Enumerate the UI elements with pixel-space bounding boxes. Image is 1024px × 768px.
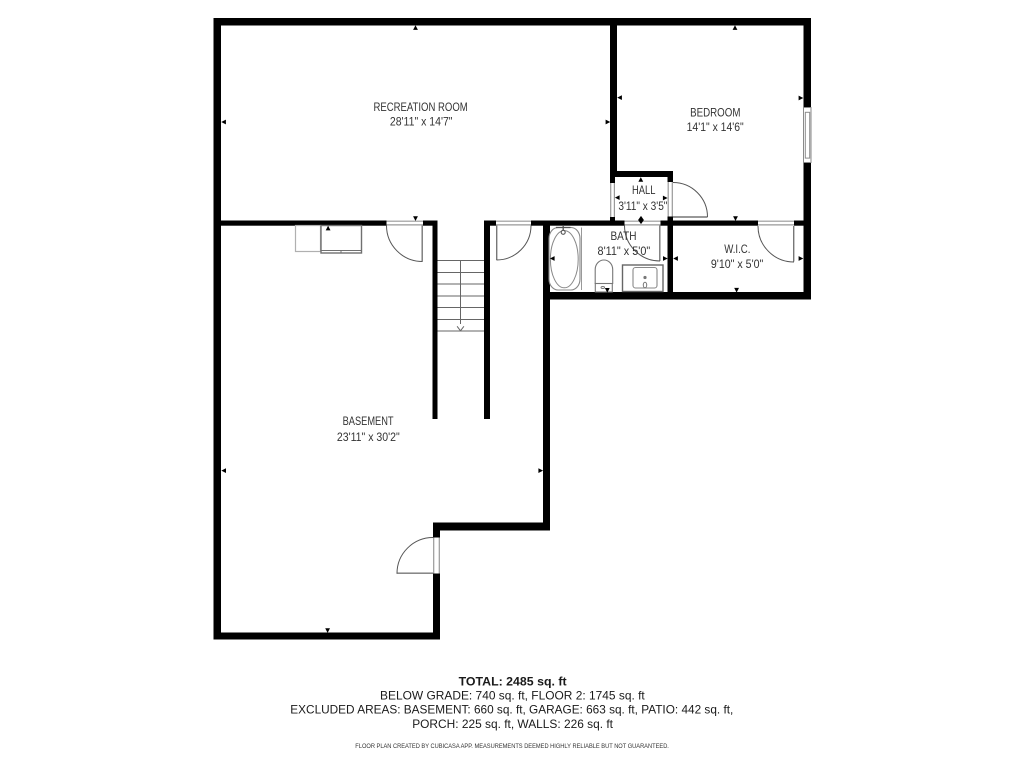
svg-text:28'11" x 14'7": 28'11" x 14'7" (390, 115, 453, 129)
svg-text:14'1" x 14'6": 14'1" x 14'6" (687, 120, 744, 134)
svg-text:BEDROOM: BEDROOM (690, 106, 740, 120)
svg-text:FLOOR PLAN CREATED BY CUBICASA: FLOOR PLAN CREATED BY CUBICASA APP. MEAS… (355, 743, 669, 750)
svg-text:8'11" x 5'0": 8'11" x 5'0" (598, 244, 651, 258)
svg-text:23'11" x 30'2": 23'11" x 30'2" (337, 430, 400, 444)
svg-text:PORCH: 225 sq. ft, WALLS: 226: PORCH: 225 sq. ft, WALLS: 226 sq. ft (412, 717, 613, 731)
svg-text:W.I.C.: W.I.C. (724, 242, 750, 256)
svg-text:TOTAL: 2485 sq. ft: TOTAL: 2485 sq. ft (459, 675, 567, 689)
svg-text:BASEMENT: BASEMENT (343, 414, 394, 428)
svg-text:9'10" x 5'0": 9'10" x 5'0" (711, 257, 763, 271)
svg-text:BELOW GRADE: 740 sq. ft, FLOOR: BELOW GRADE: 740 sq. ft, FLOOR 2: 1745 s… (380, 688, 645, 702)
svg-text:HALL: HALL (632, 183, 656, 197)
svg-text:BATH: BATH (611, 229, 637, 243)
svg-text:3'11" x 3'5": 3'11" x 3'5" (618, 199, 667, 213)
svg-text:EXCLUDED AREAS: BASEMENT: 660: EXCLUDED AREAS: BASEMENT: 660 sq. ft, GA… (290, 703, 733, 717)
svg-text:RECREATION ROOM: RECREATION ROOM (373, 100, 467, 114)
